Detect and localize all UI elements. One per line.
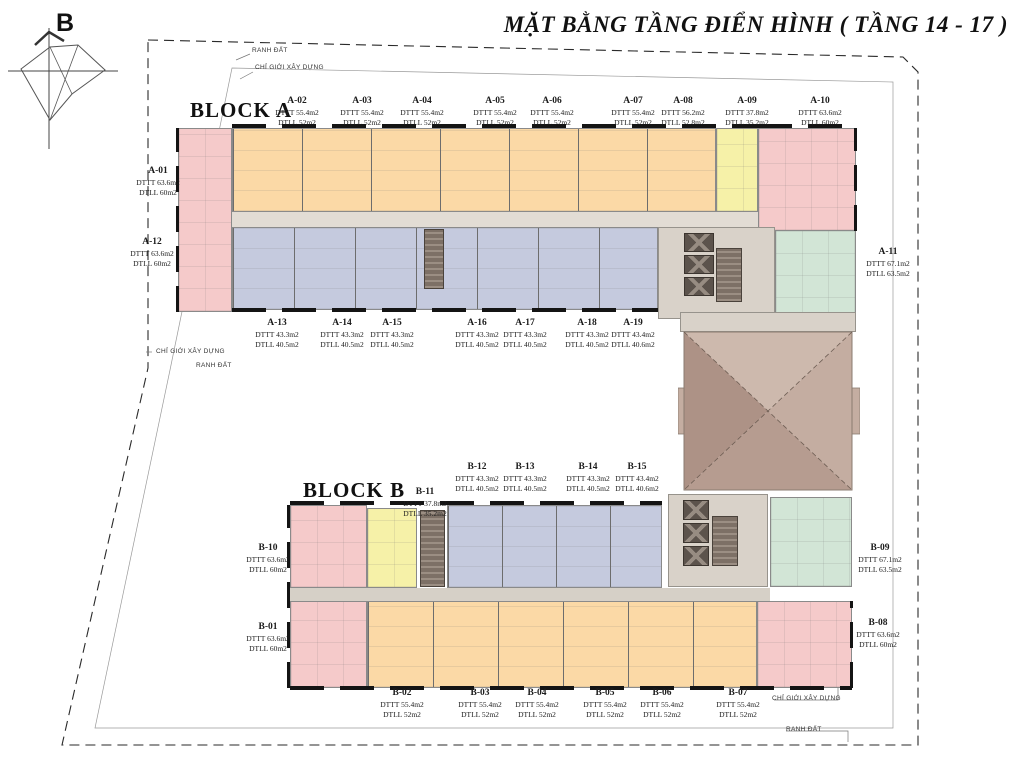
block-a-unit-yellow — [716, 128, 758, 212]
unit-id: B-01 — [246, 622, 290, 634]
annotation-leader — [236, 54, 250, 60]
unit-label-B-05: B-05DTTT 55.4m2DTLL 52m2 — [583, 688, 627, 719]
annotation-chi-gioi: CHỈ GIỚI XÂY DỰNG — [772, 695, 841, 702]
unit-area-dtll: DTLL 52m2 — [473, 118, 517, 128]
unit-id: B-05 — [583, 688, 627, 700]
unit-label-B-09: B-09DTTT 67.1m2DTLL 63.5m2 — [858, 543, 902, 574]
unit-label-A-10: A-10DTTT 63.6m2DTLL 60m2 — [798, 96, 842, 127]
unit-area-dtll: DTLL 60m2 — [130, 259, 174, 269]
unit-id: B-02 — [380, 688, 424, 700]
unit-label-A-19: A-19DTTT 43.4m2DTLL 40.6m2 — [611, 318, 655, 349]
unit-id: A-18 — [565, 318, 609, 330]
block-b-unit-pink-topleft — [290, 505, 367, 588]
block-b-units-orange-row — [367, 601, 757, 688]
unit-area-dtll: DTLL 60m2 — [246, 565, 290, 575]
unit-area-dttt: DTTT 43.3m2 — [320, 330, 364, 340]
north-arrow-compass-icon: B — [6, 4, 124, 156]
unit-id: A-02 — [275, 96, 319, 108]
block-b-unit-pink-bottomleft — [290, 601, 367, 688]
unit-label-B-06: B-06DTTT 55.4m2DTLL 52m2 — [640, 688, 684, 719]
unit-area-dtll: DTLL 40.5m2 — [503, 340, 547, 350]
unit-area-dtll: DTLL 40.6m2 — [611, 340, 655, 350]
unit-id: A-05 — [473, 96, 517, 108]
unit-area-dttt: DTTT 56.2m2 — [661, 108, 705, 118]
unit-label-B-04: B-04DTTT 55.4m2DTLL 52m2 — [515, 688, 559, 719]
unit-label-B-10: B-10DTTT 63.6m2DTLL 60m2 — [246, 543, 290, 574]
unit-id: A-17 — [503, 318, 547, 330]
unit-id: B-09 — [858, 543, 902, 555]
unit-label-B-14: B-14DTTT 43.3m2DTLL 40.5m2 — [566, 462, 610, 493]
unit-id: A-03 — [340, 96, 384, 108]
unit-area-dttt: DTTT 43.3m2 — [370, 330, 414, 340]
unit-area-dtll: DTLL 52m2 — [400, 118, 444, 128]
unit-area-dtll: DTLL 60m2 — [856, 640, 900, 650]
unit-id: B-07 — [716, 688, 760, 700]
unit-label-A-18: A-18DTTT 43.3m2DTLL 40.5m2 — [565, 318, 609, 349]
unit-label-A-07: A-07DTTT 55.4m2DTLL 52m2 — [611, 96, 655, 127]
block-a-elevator-icon — [684, 277, 714, 296]
unit-area-dtll: DTLL 52m2 — [380, 710, 424, 720]
unit-area-dttt: DTTT 63.6m2 — [246, 555, 290, 565]
block-a-core-stair — [716, 248, 742, 302]
unit-id: A-04 — [400, 96, 444, 108]
unit-area-dtll: DTLL 60m2 — [136, 188, 180, 198]
block-b-units-blue-row — [447, 505, 662, 588]
unit-area-dtll: DTLL 40.6m2 — [615, 484, 659, 494]
unit-label-A-04: A-04DTTT 55.4m2DTLL 52m2 — [400, 96, 444, 127]
unit-id: B-13 — [503, 462, 547, 474]
unit-area-dttt: DTTT 55.4m2 — [583, 700, 627, 710]
unit-id: A-13 — [255, 318, 299, 330]
unit-area-dttt: DTTT 43.3m2 — [503, 474, 547, 484]
block-a-mid-stair — [424, 229, 444, 289]
unit-label-B-13: B-13DTTT 43.3m2DTLL 40.5m2 — [503, 462, 547, 493]
unit-area-dtll: DTLL 60m2 — [246, 644, 290, 654]
unit-label-B-12: B-12DTTT 43.3m2DTLL 40.5m2 — [455, 462, 499, 493]
unit-area-dttt: DTTT 43.4m2 — [615, 474, 659, 484]
unit-label-B-11: B-11DTTT 37.8m2DTLL 35.2m2 — [403, 487, 447, 518]
unit-area-dttt: DTTT 55.4m2 — [716, 700, 760, 710]
unit-area-dtll: DTLL 40.5m2 — [320, 340, 364, 350]
wall-segment — [176, 128, 179, 312]
unit-area-dtll: DTLL 40.5m2 — [255, 340, 299, 350]
annotation-ranh-dat: RANH ĐẤT — [786, 726, 822, 733]
unit-id: B-14 — [566, 462, 610, 474]
unit-area-dtll: DTLL 60m2 — [798, 118, 842, 128]
unit-area-dttt: DTTT 55.4m2 — [275, 108, 319, 118]
unit-area-dttt: DTTT 55.4m2 — [473, 108, 517, 118]
wall-segment — [854, 128, 857, 231]
unit-area-dttt: DTTT 43.3m2 — [565, 330, 609, 340]
unit-area-dtll: DTLL 52m2 — [716, 710, 760, 720]
unit-label-B-02: B-02DTTT 55.4m2DTLL 52m2 — [380, 688, 424, 719]
unit-area-dtll: DTLL 35.2m2 — [403, 509, 447, 519]
unit-label-A-03: A-03DTTT 55.4m2DTLL 52m2 — [340, 96, 384, 127]
unit-id: A-06 — [530, 96, 574, 108]
unit-area-dttt: DTTT 55.4m2 — [640, 700, 684, 710]
unit-label-A-15: A-15DTTT 43.3m2DTLL 40.5m2 — [370, 318, 414, 349]
unit-label-A-02: A-02DTTT 55.4m2DTLL 52m2 — [275, 96, 319, 127]
unit-area-dttt: DTTT 43.3m2 — [503, 330, 547, 340]
unit-area-dttt: DTTT 55.4m2 — [340, 108, 384, 118]
unit-area-dttt: DTTT 55.4m2 — [515, 700, 559, 710]
unit-id: B-15 — [615, 462, 659, 474]
unit-label-A-16: A-16DTTT 43.3m2DTLL 40.5m2 — [455, 318, 499, 349]
block-a-unit-pink-right — [758, 128, 856, 231]
wall-segment — [287, 505, 290, 688]
unit-area-dtll: DTLL 40.5m2 — [566, 484, 610, 494]
unit-area-dtll: DTLL 52m2 — [275, 118, 319, 128]
unit-id: A-01 — [136, 166, 180, 178]
unit-label-A-05: A-05DTTT 55.4m2DTLL 52m2 — [473, 96, 517, 127]
block-b-elevator-icon — [683, 523, 709, 543]
block-b-elevator-icon — [683, 546, 709, 566]
wall-segment — [232, 308, 658, 312]
unit-area-dtll: DTLL 52m2 — [515, 710, 559, 720]
unit-area-dttt: DTTT 43.3m2 — [255, 330, 299, 340]
unit-area-dttt: DTTT 43.3m2 — [566, 474, 610, 484]
block-a-unit-pink-left — [178, 128, 232, 312]
unit-area-dtll: DTLL 40.5m2 — [455, 484, 499, 494]
unit-id: B-12 — [455, 462, 499, 474]
unit-id: B-08 — [856, 618, 900, 630]
unit-area-dttt: DTTT 55.4m2 — [458, 700, 502, 710]
unit-area-dttt: DTTT 63.6m2 — [856, 630, 900, 640]
unit-area-dtll: DTLL 52m2 — [340, 118, 384, 128]
block-a-unit-green — [775, 230, 856, 321]
unit-label-A-06: A-06DTTT 55.4m2DTLL 52m2 — [530, 96, 574, 127]
unit-area-dttt: DTTT 55.4m2 — [530, 108, 574, 118]
unit-label-A-11: A-11DTTT 67.1m2DTLL 63.5m2 — [866, 247, 910, 278]
unit-label-A-09: A-09DTTT 37.8m2DTLL 35.2m2 — [725, 96, 769, 127]
annotation-leader — [240, 72, 253, 79]
block-b-unit-green — [770, 497, 852, 587]
block-a-elevator-icon — [684, 233, 714, 252]
unit-area-dtll: DTLL 52m2 — [583, 710, 627, 720]
block-b-unit-yellow — [367, 508, 417, 588]
unit-id: A-16 — [455, 318, 499, 330]
unit-id: A-19 — [611, 318, 655, 330]
unit-area-dttt: DTTT 55.4m2 — [400, 108, 444, 118]
block-a-corridor — [185, 212, 855, 228]
page-title: MẶT BẰNG TẦNG ĐIỂN HÌNH ( TẦNG 14 - 17 ) — [504, 12, 1008, 38]
unit-label-A-14: A-14DTTT 43.3m2DTLL 40.5m2 — [320, 318, 364, 349]
annotation-ranh-dat: RANH ĐẤT — [196, 362, 232, 369]
block-b-corridor — [290, 588, 770, 602]
unit-area-dtll: DTLL 40.5m2 — [565, 340, 609, 350]
block-b-mid-stair — [420, 510, 445, 587]
unit-id: A-08 — [661, 96, 705, 108]
block-b-title: BLOCK B — [303, 478, 405, 503]
block-b-core-stair — [712, 516, 738, 566]
unit-area-dttt: DTTT 63.6m2 — [136, 178, 180, 188]
unit-area-dttt: DTTT 43.3m2 — [455, 474, 499, 484]
unit-area-dttt: DTTT 43.4m2 — [611, 330, 655, 340]
block-a-units-blue-row — [232, 227, 658, 310]
unit-id: A-14 — [320, 318, 364, 330]
unit-area-dtll: DTLL 40.5m2 — [370, 340, 414, 350]
unit-label-A-08: A-08DTTT 56.2m2DTLL 52.8m2 — [661, 96, 705, 127]
annotation-chi-gioi: CHỈ GIỚI XÂY DỰNG — [255, 64, 324, 71]
unit-id: A-12 — [130, 237, 174, 249]
unit-area-dttt: DTTT 37.8m2 — [403, 499, 447, 509]
unit-id: A-11 — [866, 247, 910, 259]
unit-id: B-11 — [403, 487, 447, 499]
unit-id: B-06 — [640, 688, 684, 700]
unit-area-dttt: DTTT 63.6m2 — [130, 249, 174, 259]
unit-label-B-03: B-03DTTT 55.4m2DTLL 52m2 — [458, 688, 502, 719]
unit-id: A-09 — [725, 96, 769, 108]
unit-id: B-10 — [246, 543, 290, 555]
wall-segment — [850, 601, 853, 688]
unit-area-dttt: DTTT 55.4m2 — [380, 700, 424, 710]
block-a-elevator-icon — [684, 255, 714, 274]
unit-area-dtll: DTLL 40.5m2 — [503, 484, 547, 494]
roof-connector-terrace — [680, 312, 856, 332]
annotation-ranh-dat: RANH ĐẤT — [252, 47, 288, 54]
unit-area-dtll: DTLL 52m2 — [530, 118, 574, 128]
unit-label-B-08: B-08DTTT 63.6m2DTLL 60m2 — [856, 618, 900, 649]
unit-id: A-15 — [370, 318, 414, 330]
unit-area-dttt: DTTT 67.1m2 — [866, 259, 910, 269]
unit-label-A-17: A-17DTTT 43.3m2DTLL 40.5m2 — [503, 318, 547, 349]
unit-label-A-13: A-13DTTT 43.3m2DTLL 40.5m2 — [255, 318, 299, 349]
unit-area-dttt: DTTT 55.4m2 — [611, 108, 655, 118]
compass-label: B — [56, 9, 74, 37]
unit-area-dttt: DTTT 43.3m2 — [455, 330, 499, 340]
unit-area-dttt: DTTT 37.8m2 — [725, 108, 769, 118]
annotation-chi-gioi: CHỈ GIỚI XÂY DỰNG — [156, 348, 225, 355]
unit-area-dttt: DTTT 67.1m2 — [858, 555, 902, 565]
unit-label-B-07: B-07DTTT 55.4m2DTLL 52m2 — [716, 688, 760, 719]
unit-label-B-01: B-01DTTT 63.6m2DTLL 60m2 — [246, 622, 290, 653]
unit-id: B-03 — [458, 688, 502, 700]
unit-area-dttt: DTTT 63.6m2 — [798, 108, 842, 118]
wall-segment — [290, 686, 852, 690]
unit-id: A-07 — [611, 96, 655, 108]
unit-area-dttt: DTTT 63.6m2 — [246, 634, 290, 644]
unit-area-dtll: DTLL 52m2 — [611, 118, 655, 128]
unit-area-dtll: DTLL 52m2 — [640, 710, 684, 720]
central-hip-roof — [678, 330, 860, 494]
unit-label-B-15: B-15DTTT 43.4m2DTLL 40.6m2 — [615, 462, 659, 493]
unit-area-dtll: DTLL 52.8m2 — [661, 118, 705, 128]
unit-label-A-12: A-12DTTT 63.6m2DTLL 60m2 — [130, 237, 174, 268]
unit-id: B-04 — [515, 688, 559, 700]
floor-plan-page: B MẶT BẰNG TẦNG ĐIỂN HÌNH ( TẦNG 14 - 17… — [0, 0, 1024, 768]
block-a-units-orange-row — [232, 128, 716, 212]
block-b-unit-pink-right — [757, 601, 852, 688]
unit-area-dtll: DTLL 52m2 — [458, 710, 502, 720]
unit-area-dtll: DTLL 35.2m2 — [725, 118, 769, 128]
unit-area-dtll: DTLL 40.5m2 — [455, 340, 499, 350]
block-b-elevator-icon — [683, 500, 709, 520]
unit-label-A-01: A-01DTTT 63.6m2DTLL 60m2 — [136, 166, 180, 197]
unit-area-dtll: DTLL 63.5m2 — [858, 565, 902, 575]
unit-id: A-10 — [798, 96, 842, 108]
unit-area-dtll: DTLL 63.5m2 — [866, 269, 910, 279]
